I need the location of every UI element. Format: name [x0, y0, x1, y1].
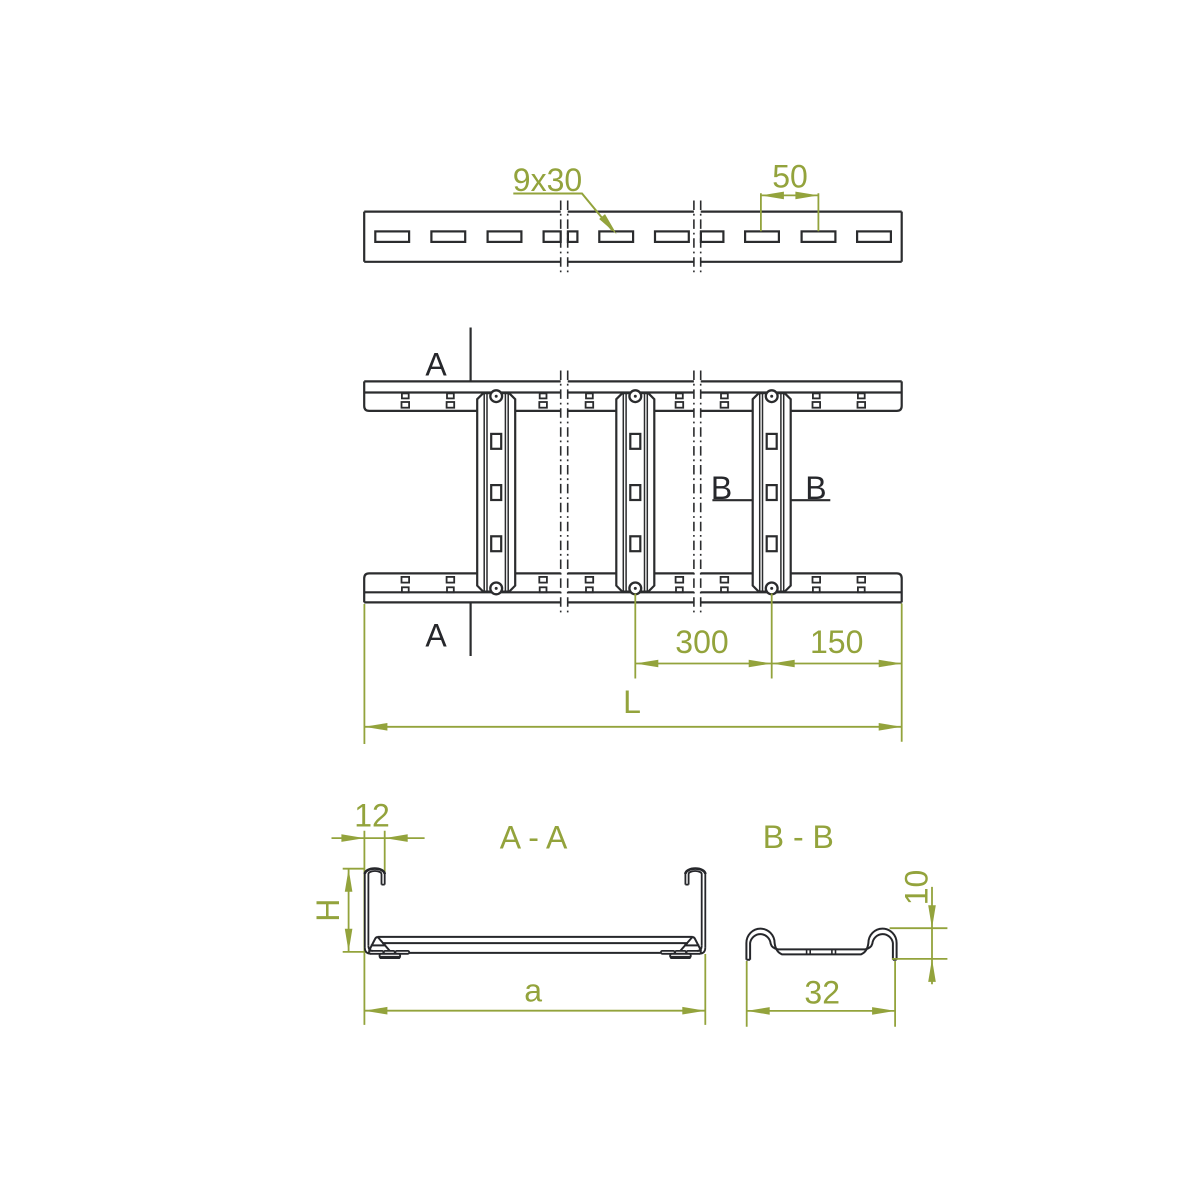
svg-text:A - A: A - A: [500, 820, 568, 856]
svg-text:H: H: [310, 899, 346, 922]
svg-text:L: L: [623, 684, 641, 720]
svg-text:12: 12: [354, 798, 390, 834]
svg-text:300: 300: [675, 624, 728, 660]
svg-text:a: a: [524, 972, 542, 1008]
svg-text:32: 32: [804, 975, 840, 1011]
svg-text:B: B: [805, 470, 826, 506]
svg-text:150: 150: [810, 624, 863, 660]
svg-text:A: A: [425, 347, 447, 383]
svg-text:50: 50: [772, 159, 808, 195]
svg-text:B: B: [711, 470, 732, 506]
svg-text:A: A: [425, 618, 447, 654]
svg-text:10: 10: [899, 870, 935, 906]
svg-text:B - B: B - B: [763, 819, 834, 855]
